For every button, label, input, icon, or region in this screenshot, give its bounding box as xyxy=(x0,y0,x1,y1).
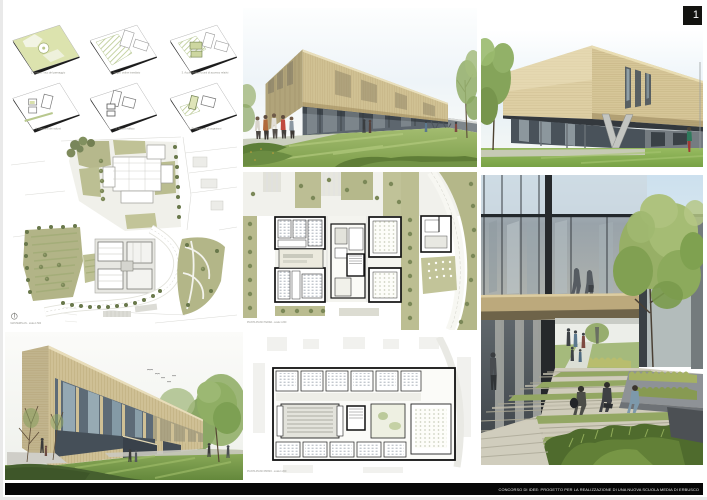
svg-text:PIANTA PIANO TERRA - scala 1:2: PIANTA PIANO TERRA - scala 1:200 xyxy=(247,321,287,324)
svg-text:5. Nuovo edificio: 5. Nuovo edificio xyxy=(115,127,135,131)
svg-text:2. I segni: ordine insediato: 2. I segni: ordine insediato xyxy=(110,71,141,75)
svg-text:3. Accessibilita e punti di ac: 3. Accessibilita e punti di accesso rela… xyxy=(182,71,229,75)
svg-text:PIANTA PIANO PRIMO - scala 1:2: PIANTA PIANO PRIMO - scala 1:200 xyxy=(247,470,287,473)
svg-text:4. Giacitura dei volumi: 4. Giacitura dei volumi xyxy=(35,127,61,131)
svg-text:MASTERPLAN - scala 1:500: MASTERPLAN - scala 1:500 xyxy=(11,322,42,325)
svg-text:6. Relazioni tra gli organismi: 6. Relazioni tra gli organismi xyxy=(189,127,222,131)
svg-text:1. I segni: i trcc del paesagg: 1. I segni: i trcc del paesaggio xyxy=(31,71,66,75)
